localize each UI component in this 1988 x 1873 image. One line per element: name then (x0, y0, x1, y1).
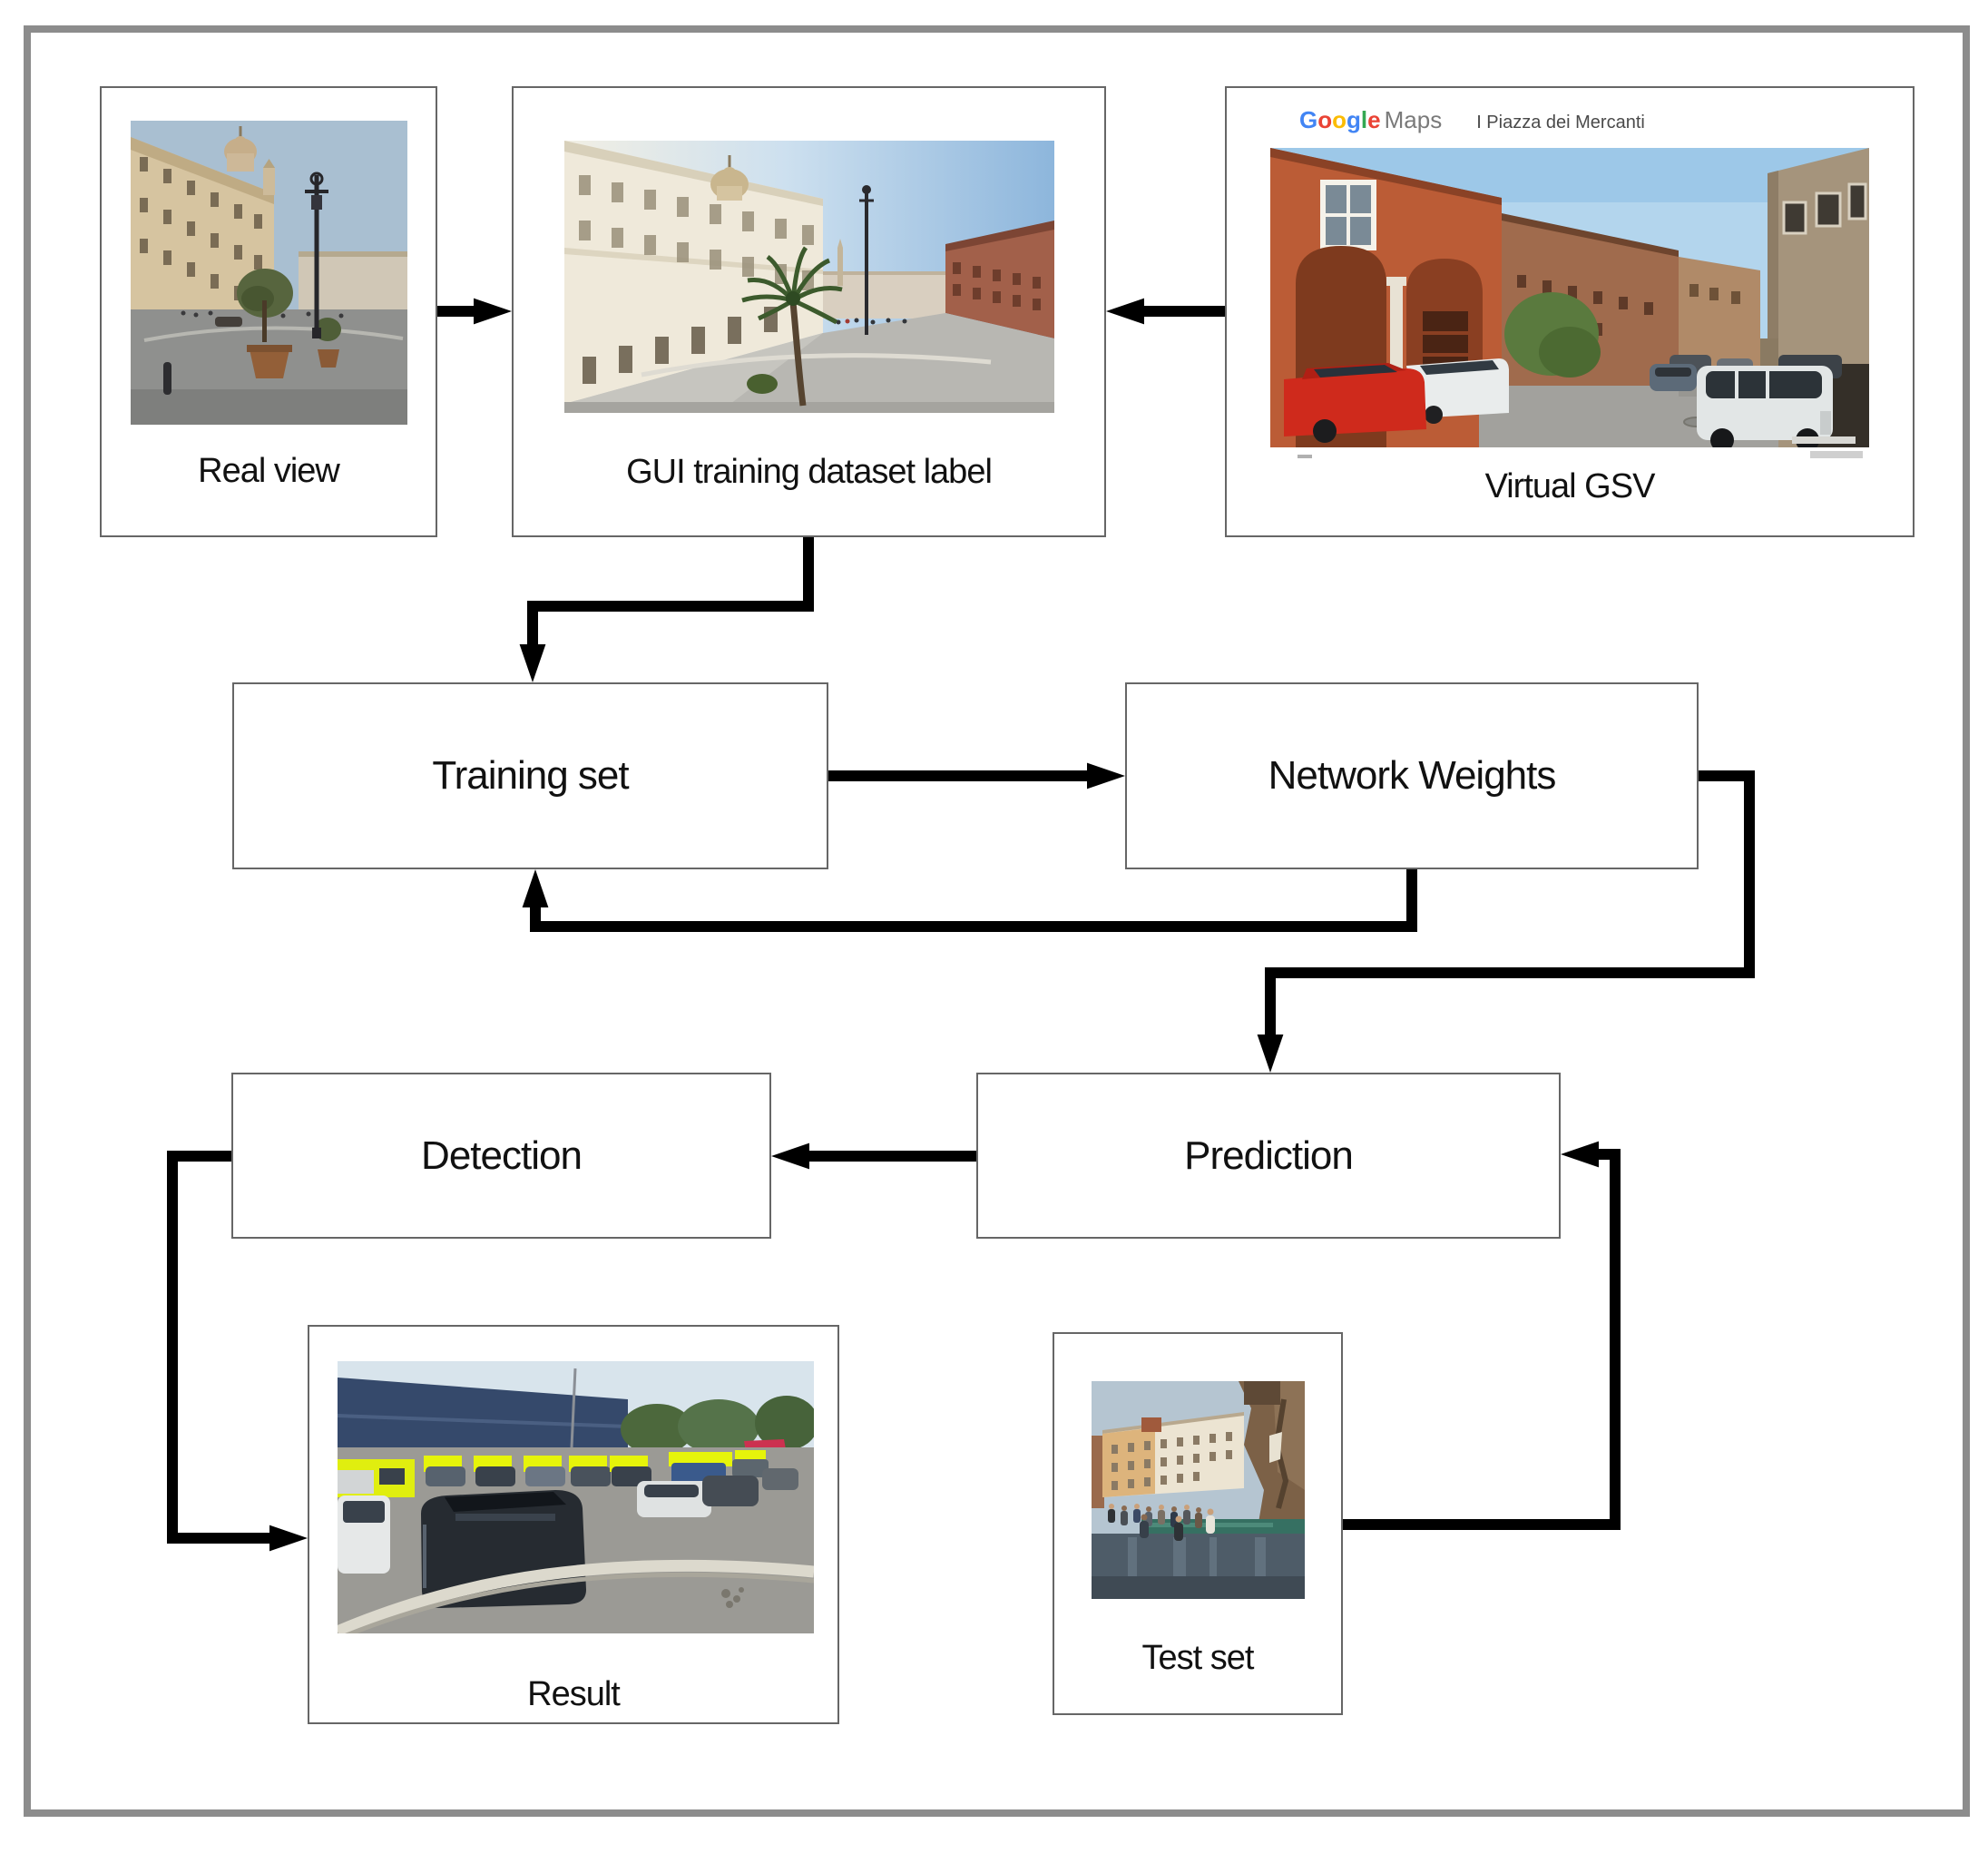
gui-training-label: GUI training dataset label (626, 453, 992, 492)
detection-label: Detection (421, 1133, 582, 1179)
maps-wordmark: Maps (1385, 106, 1443, 133)
node-gui-training: GUI training dataset label (512, 86, 1106, 537)
real-view-photo (131, 121, 407, 425)
test-set-photo (1092, 1381, 1305, 1599)
test-set-label: Test set (1142, 1639, 1254, 1678)
photo-caption-dash (1298, 455, 1312, 458)
result-label: Result (527, 1675, 620, 1714)
node-real-view: Real view (100, 86, 437, 537)
google-maps-header: GoogleMaps I Piazza dei Mercanti (1227, 88, 1913, 141)
node-result: Result (308, 1325, 839, 1724)
prediction-label: Prediction (1184, 1133, 1353, 1179)
node-virtual-gsv: GoogleMaps I Piazza dei Mercanti (1225, 86, 1915, 537)
network-weights-label: Network Weights (1268, 753, 1556, 799)
virtual-gsv-photo (1270, 148, 1869, 447)
virtual-gsv-label: Virtual GSV (1485, 467, 1655, 506)
node-network-weights: Network Weights (1125, 682, 1699, 869)
node-training-set: Training set (232, 682, 828, 869)
google-maps-logo: GoogleMaps (1299, 106, 1442, 134)
flowchart-canvas: Real view (0, 0, 1988, 1873)
node-test-set: Test set (1053, 1332, 1343, 1715)
real-view-label: Real view (198, 452, 339, 491)
search-query-text: I Piazza dei Mercanti (1476, 113, 1645, 133)
result-photo (338, 1361, 814, 1633)
photo-attribution (1810, 451, 1863, 458)
gui-training-photo (564, 141, 1054, 413)
node-detection: Detection (231, 1073, 771, 1239)
node-prediction: Prediction (976, 1073, 1561, 1239)
training-set-label: Training set (432, 753, 628, 799)
